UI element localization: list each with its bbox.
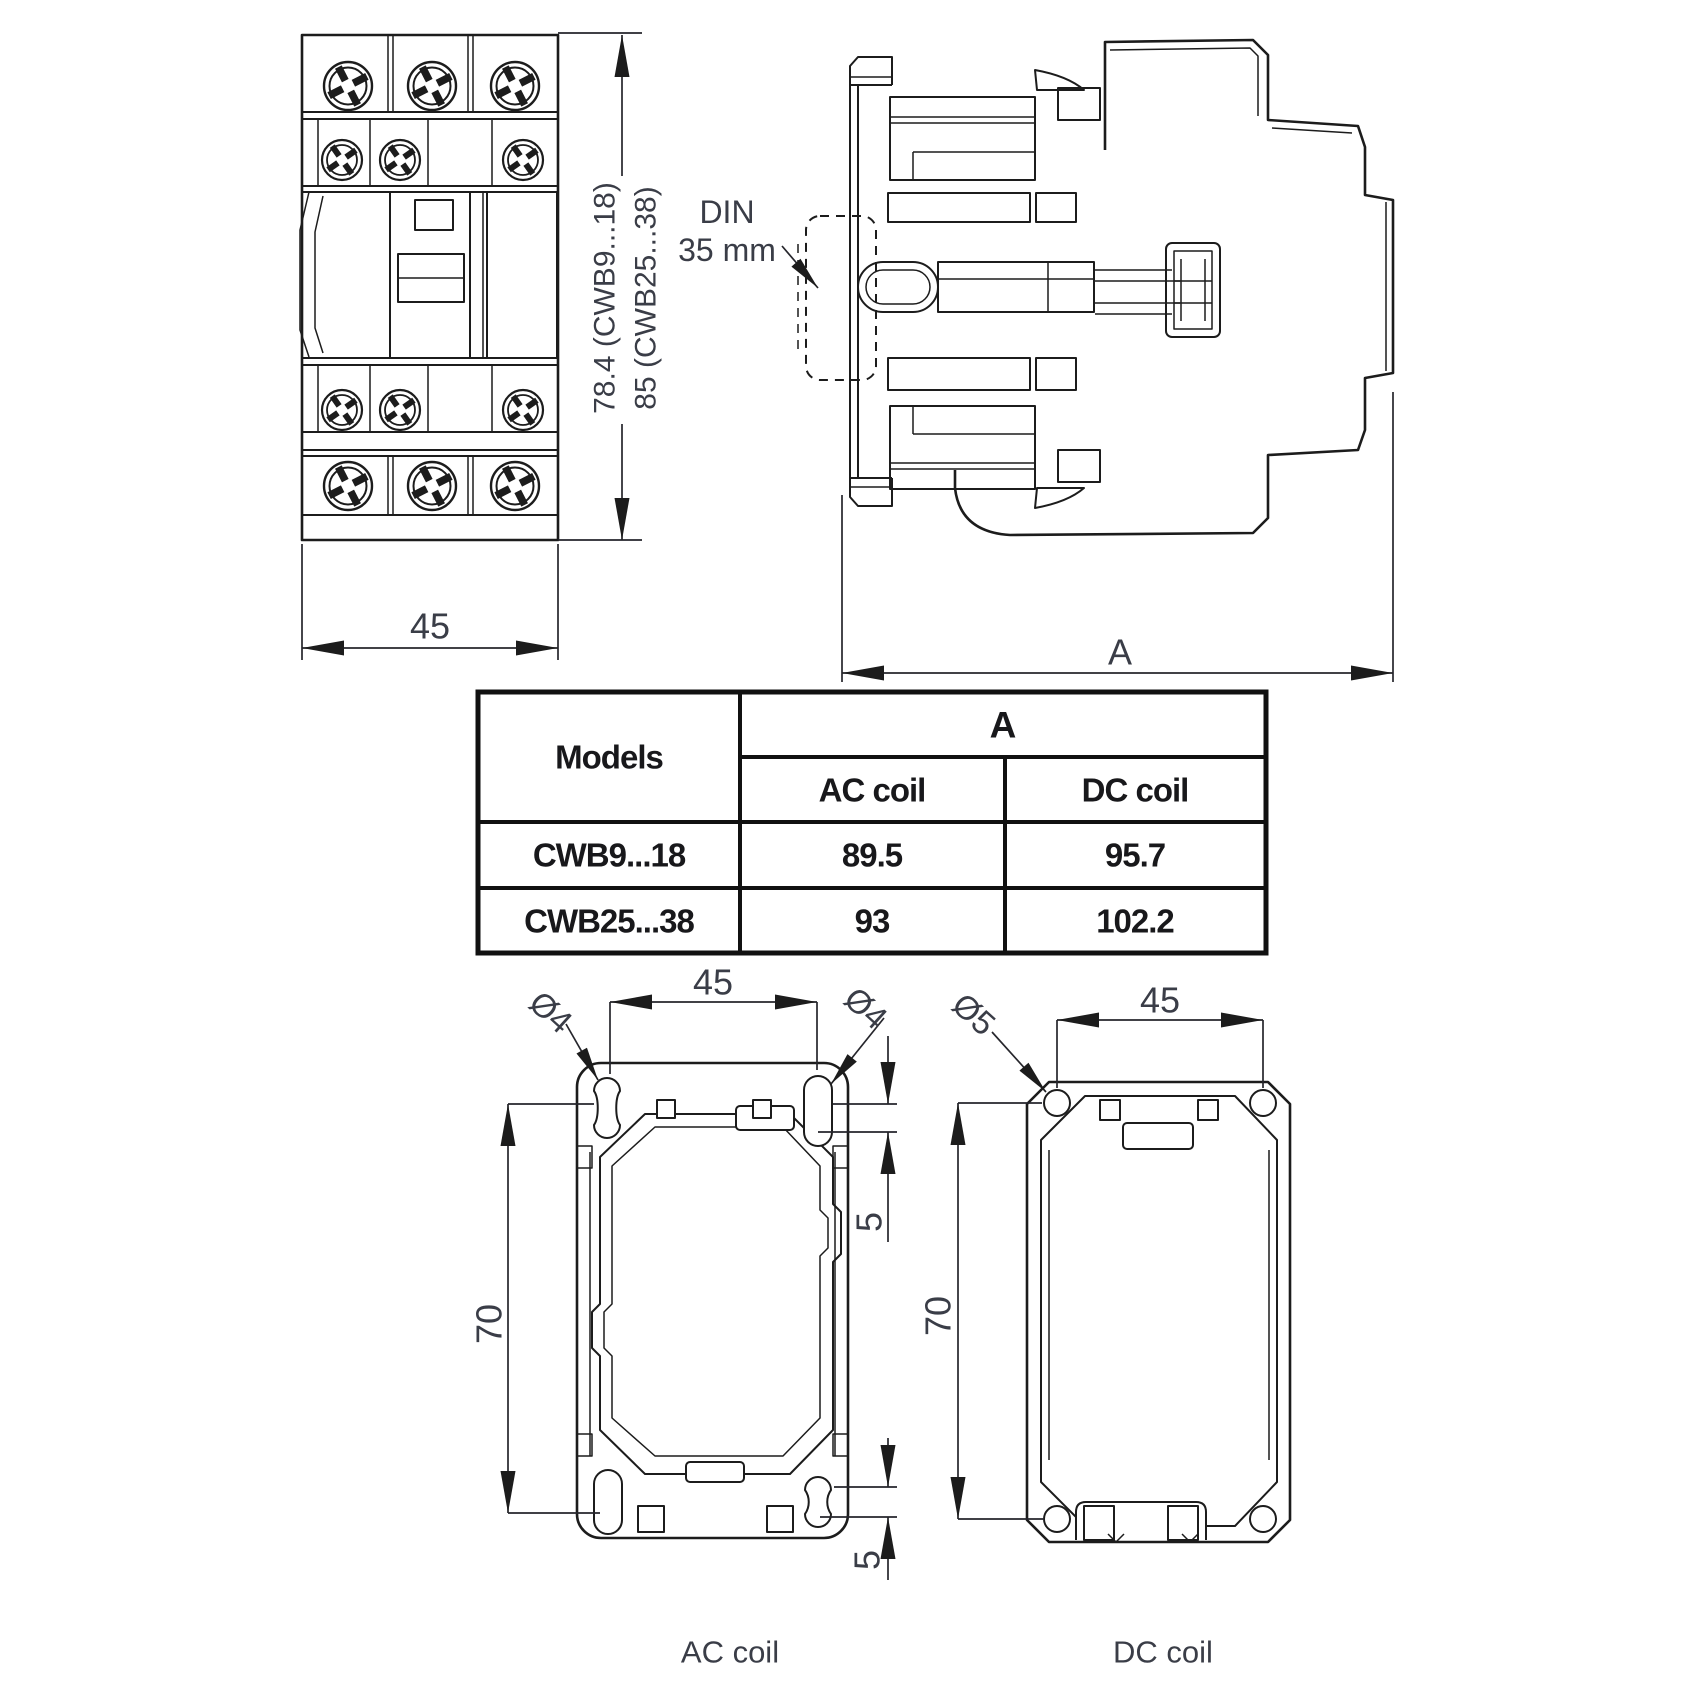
hole-top-right <box>1250 1090 1276 1116</box>
front-height-dim-label-cwb9-18: 78.4 (CWB9...18) <box>589 182 622 414</box>
keyhole-slot-bottom-right <box>805 1477 831 1527</box>
table-row: CWB9...18 89.5 95.7 <box>533 837 1165 874</box>
din-label-line2: 35 mm <box>678 232 776 268</box>
front-height-dimension: 78.4 (CWB9...18) 85 (CWB25...38) <box>558 33 663 540</box>
ac-offset-top-label: 5 <box>849 1212 890 1232</box>
din-label-line1: DIN <box>699 194 754 230</box>
table-cell-ac-2: 93 <box>855 903 890 940</box>
ac-offset-bottom-dimension: 5 <box>820 1438 897 1580</box>
dc-height-dimension: 70 <box>918 1103 1045 1519</box>
dc-hole-callout: Ø5 <box>945 986 1050 1096</box>
dimensions-table: Models A AC coil DC coil CWB9...18 89.5 … <box>478 692 1266 953</box>
hole-top-left <box>1044 1090 1070 1116</box>
ac-hole-right-label: Ø4 <box>837 980 894 1037</box>
dc-height-dim-label: 70 <box>918 1296 959 1336</box>
ac-coil-caption: AC coil <box>681 1635 779 1670</box>
table-header-models: Models <box>555 739 663 776</box>
ac-hole-callout-left: Ø4 <box>522 984 603 1083</box>
front-width-dim-label: 45 <box>410 606 450 647</box>
datasheet-dimensions-page: 45 78.4 (CWB9...18) 85 (CWB25...38) <box>0 0 1700 1700</box>
dc-coil-footprint-drawing: 45 Ø5 70 DC coil <box>918 980 1291 1670</box>
dc-coil-caption: DC coil <box>1113 1635 1213 1670</box>
dimensional-drawing-canvas: 45 78.4 (CWB9...18) 85 (CWB25...38) <box>0 0 1700 1700</box>
side-depth-dim-label: A <box>1108 632 1132 673</box>
hole-bottom-right <box>1250 1506 1276 1532</box>
table-row: CWB25...38 93 102.2 <box>524 903 1174 940</box>
side-view-drawing <box>798 40 1393 535</box>
ac-coil-footprint-drawing: 45 Ø4 Ø4 5 70 <box>469 962 898 1670</box>
slot-bottom-left <box>594 1470 622 1534</box>
ac-offset-bottom-label: 5 <box>847 1550 888 1570</box>
ac-width-dim-label: 45 <box>693 962 733 1003</box>
table-header-dc-coil: DC coil <box>1082 772 1189 809</box>
table-header-a: A <box>990 705 1017 746</box>
table-header-ac-coil: AC coil <box>819 772 926 809</box>
table-cell-ac-1: 89.5 <box>842 837 903 874</box>
front-height-dim-label-cwb25-38: 85 (CWB25...38) <box>630 186 663 409</box>
ac-height-dim-label: 70 <box>469 1304 510 1344</box>
keyhole-slot-top-left <box>594 1078 620 1138</box>
ac-width-dimension: 45 <box>610 962 817 1075</box>
table-cell-model-1: CWB9...18 <box>533 837 686 874</box>
front-view-drawing <box>300 35 558 540</box>
front-width-dimension: 45 <box>302 544 558 660</box>
table-cell-dc-2: 102.2 <box>1096 903 1174 940</box>
ac-height-dimension: 70 <box>469 1104 601 1513</box>
hole-bottom-left <box>1044 1506 1070 1532</box>
dc-width-dim-label: 45 <box>1140 980 1180 1021</box>
table-cell-model-2: CWB25...38 <box>524 903 694 940</box>
din-rail-callout: DIN 35 mm <box>678 194 822 292</box>
dc-width-dimension: 45 <box>1057 980 1263 1089</box>
din-rail-profile <box>798 216 876 380</box>
table-cell-dc-1: 95.7 <box>1105 837 1165 874</box>
terminal-screws <box>322 62 543 510</box>
side-depth-dimension: A <box>842 392 1393 682</box>
slot-top-right <box>804 1076 832 1146</box>
din-release-latch <box>858 243 1220 337</box>
